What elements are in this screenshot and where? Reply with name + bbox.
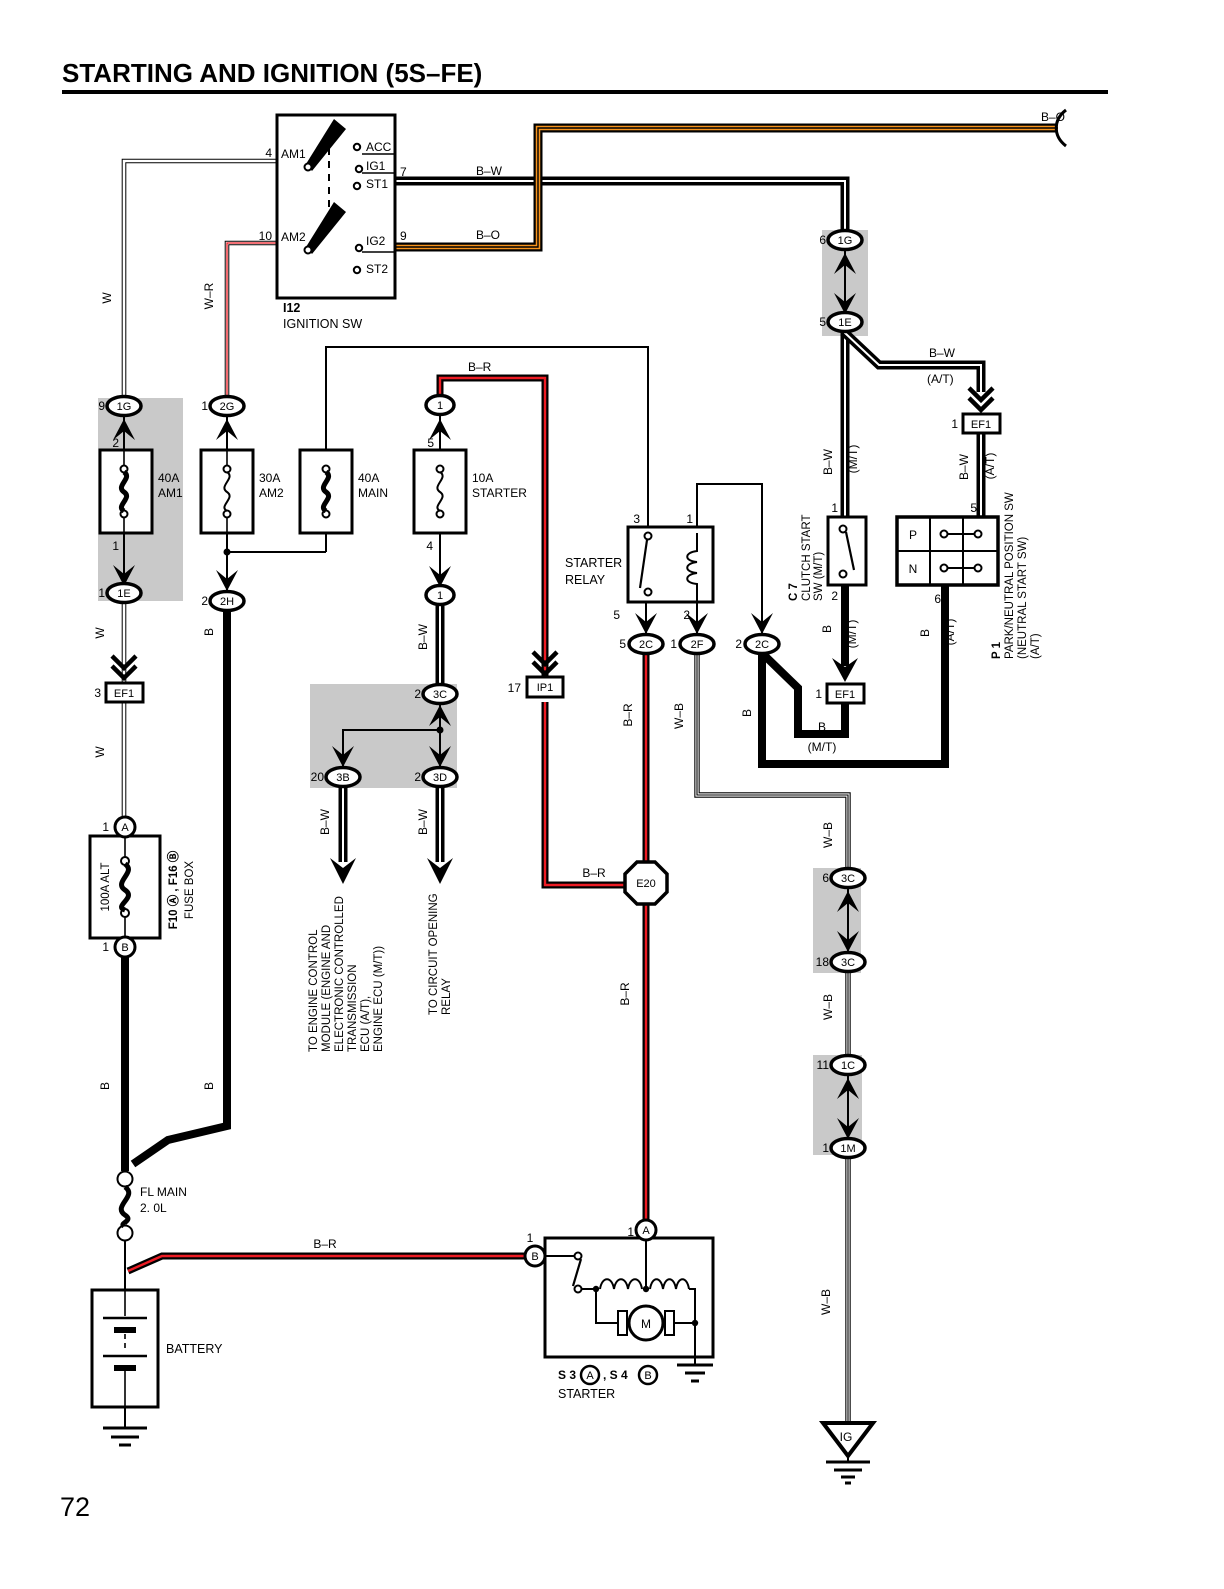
- terminal-ig2: IG2: [366, 234, 386, 248]
- label-b-2h: B: [202, 628, 216, 636]
- label-mt-clutch-feed: (M/T): [846, 445, 860, 474]
- note-ecm-4: TRANSMISSION: [347, 964, 359, 1052]
- pin-1e-right: 5: [819, 315, 826, 329]
- pin-starter-fuse-5: 5: [427, 436, 434, 450]
- pin-am2: 10: [259, 229, 273, 243]
- ignition-switch-name: IGNITION SW: [283, 317, 362, 331]
- pin-2c-left: 5: [619, 637, 626, 651]
- label-at-v: (A/T): [983, 453, 997, 480]
- clutch-pin2: 2: [831, 589, 838, 603]
- wiring-diagram-page: STARTING AND IGNITION (5S–FE) 72: [0, 0, 1224, 1584]
- fuse-starter-name: STARTER: [472, 486, 527, 500]
- pin-1g-left: 9: [98, 399, 105, 413]
- pin-2h: 2: [201, 594, 208, 608]
- connector-e20: E20: [636, 878, 656, 890]
- label-at-h: (A/T): [927, 372, 954, 386]
- connector-3d: 3D: [433, 772, 447, 784]
- label-bw-3d: B–W: [416, 808, 430, 835]
- connector-3c-mid: 3C: [433, 689, 447, 701]
- fuse-am2-name: AM2: [259, 486, 284, 500]
- label-wb-seg1: W–B: [821, 822, 835, 848]
- label-br-e20-starter: B–R: [618, 982, 632, 1006]
- ig-ground-label: IG: [840, 1430, 853, 1444]
- relay-pin1: 1: [686, 512, 693, 526]
- connector-2c-right: 2C: [755, 639, 769, 651]
- terminal-am2: AM2: [281, 230, 306, 244]
- neutral-pin6: 6: [934, 592, 941, 606]
- clutch-pin1: 1: [831, 501, 838, 515]
- pin-1m: 1: [822, 1141, 829, 1155]
- neutral-switch-name-2: (NEUTRAL START SW): [1017, 537, 1029, 659]
- starter-conn-b: B: [644, 1370, 651, 1382]
- fuse-box-name: FUSE BOX: [184, 861, 196, 919]
- fuse-am2-rating: 30A: [259, 471, 280, 485]
- connector-2g: 2G: [220, 401, 235, 413]
- note-ecm-3: ELECTRONIC CONTROLLED: [334, 896, 346, 1052]
- terminal-st1: ST1: [366, 177, 388, 191]
- clutch-switch-id: C 7: [788, 583, 800, 601]
- connector-starter-fuse-bottom: 1: [437, 590, 443, 602]
- pin-ig2: 9: [400, 229, 407, 243]
- label-br-battery: B–R: [313, 1237, 337, 1251]
- fuse-starter-rating: 10A: [472, 471, 493, 485]
- connector-ef1-left: EF1: [114, 688, 134, 700]
- label-bw-mt: B–W: [821, 448, 835, 475]
- label-b-2h-long: B: [202, 1082, 216, 1090]
- connector-2h: 2H: [220, 596, 234, 608]
- connector-b-fusebox: B: [121, 942, 128, 954]
- label-wr-am2: W–R: [202, 282, 216, 309]
- label-w-ef1: W: [93, 746, 107, 758]
- label-at-p1: (A/T): [943, 619, 957, 646]
- pin-2c-right: 2: [735, 637, 742, 651]
- pin-3c-mid: 2: [414, 687, 421, 701]
- pin-ef1-right: 1: [951, 417, 958, 431]
- starter-id-s3: S 3: [558, 1368, 576, 1382]
- label-wb-2f: W–B: [672, 703, 686, 729]
- starter-conn-a: A: [586, 1370, 594, 1382]
- position-p: P: [909, 528, 917, 542]
- label-bw-st1: B–W: [476, 164, 503, 178]
- connector-3c-top: 3C: [841, 873, 855, 885]
- label-bo-ig2: B–O: [476, 228, 500, 242]
- alt-fuse-label: 100A ALT: [100, 862, 112, 911]
- connector-ip1: IP1: [537, 682, 554, 694]
- pin-2g: 1: [201, 399, 208, 413]
- pin-ip1: 17: [508, 681, 522, 695]
- pin-am1-fuse-2: 2: [112, 436, 119, 450]
- pin-1c: 11: [817, 1058, 830, 1072]
- note-ecm-2: MODULE (ENGINE AND: [321, 925, 333, 1052]
- connector-3b: 3B: [336, 772, 349, 784]
- label-b-clutch2: B: [820, 625, 834, 633]
- note-cor-1: TO CIRCUIT OPENING: [428, 893, 440, 1015]
- terminal-ig1: IG1: [366, 159, 386, 173]
- pin-1e-left: 1: [98, 586, 105, 600]
- fuse-main-name: MAIN: [358, 486, 388, 500]
- pin-1g-right: 6: [819, 233, 826, 247]
- fuse-box-ids: F10 Ⓐ , F16 Ⓑ: [166, 850, 180, 929]
- note-ecm-1: TO ENGINE CONTROL: [308, 929, 320, 1052]
- fuse-main-rating: 40A: [358, 471, 379, 485]
- connector-1g-left: 1G: [117, 401, 132, 413]
- pin-ef1-left: 3: [94, 686, 101, 700]
- label-bw-starter-col: B–W: [416, 623, 430, 650]
- ignition-switch-id: I12: [283, 301, 300, 315]
- connector-1m: 1M: [840, 1143, 855, 1155]
- pin-starter-fuse-4: 4: [426, 539, 433, 553]
- battery-label: BATTERY: [166, 1342, 223, 1356]
- ignition-switch: ACC IG1 ST1 IG2 ST2 AM1 AM2 4 10 7 9 I12…: [259, 115, 407, 331]
- label-w-1e: W: [93, 627, 107, 639]
- clutch-switch-name-2: SW (M/T): [813, 552, 825, 601]
- motor-label: M: [641, 1317, 651, 1331]
- label-br-top: B–R: [468, 360, 492, 374]
- pin-a-fusebox: 1: [102, 820, 109, 834]
- terminal-am1: AM1: [281, 147, 306, 161]
- fuse-am1-name: AM1: [158, 486, 183, 500]
- page-number: 72: [60, 1492, 90, 1522]
- label-w-am1: W: [100, 292, 114, 304]
- label-bw-3b: B–W: [318, 808, 332, 835]
- starter-id-s4: , S 4: [603, 1368, 628, 1382]
- fuse-am1-rating: 40A: [158, 471, 179, 485]
- terminal-st2: ST2: [366, 262, 388, 276]
- neutral-switch-name-1: PARK/NEUTRAL POSITION SW: [1004, 492, 1016, 659]
- neutral-pin5: 5: [970, 501, 977, 515]
- relay-pin2: 2: [683, 608, 690, 622]
- pin-st1: 7: [400, 165, 407, 179]
- connector-1g-right: 1G: [838, 235, 853, 247]
- label-wb-seg3: W–B: [819, 1289, 833, 1315]
- note-ecm-5: ECU (A/T),: [360, 996, 372, 1052]
- connector-1e-left: 1E: [117, 588, 130, 600]
- relay-pin3: 3: [633, 512, 640, 526]
- page-title: STARTING AND IGNITION (5S–FE): [62, 58, 482, 88]
- label-mt-clutch2: (M/T): [845, 620, 859, 649]
- starter-relay-label-2: RELAY: [565, 573, 606, 587]
- pin-2f: 1: [670, 637, 677, 651]
- starting-ignition-diagram: STARTING AND IGNITION (5S–FE) 72: [0, 0, 1224, 1584]
- connector-a-fusebox: A: [121, 822, 129, 834]
- fl-main-label-1: FL MAIN: [140, 1185, 187, 1199]
- label-bo-top: B–O: [1041, 110, 1065, 124]
- pin-am1: 4: [265, 146, 272, 160]
- pin-3b: 20: [311, 770, 325, 784]
- connector-3c-bottom: 3C: [841, 957, 855, 969]
- label-bw-at-v: B–W: [957, 453, 971, 480]
- connector-starter-b: B: [531, 1251, 538, 1263]
- note-ecm-6: ENGINE ECU (M/T)): [373, 946, 385, 1052]
- pin-3c-bottom: 18: [816, 955, 830, 969]
- connector-ef1-right: EF1: [971, 419, 991, 431]
- connector-1e-right: 1E: [838, 317, 851, 329]
- pin-3c-top: 6: [822, 871, 829, 885]
- title-underline: [62, 90, 1108, 94]
- neutral-switch-id: P 1: [991, 641, 1003, 659]
- connector-2c-left: 2C: [639, 639, 653, 651]
- label-b-2c2: B: [740, 709, 754, 717]
- connector-1c: 1C: [841, 1060, 855, 1072]
- fl-main-label-2: 2. 0L: [140, 1201, 167, 1215]
- label-mt-ef1mt: (M/T): [808, 740, 837, 754]
- pin-ef1-mt: 1: [815, 687, 822, 701]
- connector-starter-fuse-top: 1: [437, 400, 443, 412]
- label-b-fusebox: B: [98, 1082, 112, 1090]
- position-n: N: [909, 562, 918, 576]
- pin-am1-fuse-1: 1: [112, 539, 119, 553]
- label-bw-at-h: B–W: [929, 346, 956, 360]
- label-b-p1: B: [918, 629, 932, 637]
- starter-relay-box: [628, 527, 713, 602]
- pin-b-fusebox: 1: [102, 940, 109, 954]
- pin-starter-a: 1: [627, 1225, 634, 1239]
- relay-pin5: 5: [613, 608, 620, 622]
- starter-name: STARTER: [558, 1387, 615, 1401]
- connector-ef1-mt: EF1: [835, 689, 855, 701]
- connector-starter-a: A: [642, 1225, 650, 1237]
- pin-starter-b: 1: [527, 1231, 534, 1245]
- label-br-2c5: B–R: [621, 703, 635, 727]
- pin-3d: 2: [414, 770, 421, 784]
- note-cor-2: RELAY: [441, 978, 453, 1015]
- label-wb-seg2: W–B: [821, 994, 835, 1020]
- connector-2f: 2F: [691, 639, 704, 651]
- starter-relay-label-1: STARTER: [565, 556, 622, 570]
- neutral-switch-name-3: (A/T): [1030, 633, 1042, 659]
- label-br-e20: B–R: [582, 866, 606, 880]
- terminal-acc: ACC: [366, 140, 392, 154]
- clutch-switch-name-1: CLUTCH START: [801, 515, 813, 601]
- label-b-ef1mt: B: [818, 720, 826, 734]
